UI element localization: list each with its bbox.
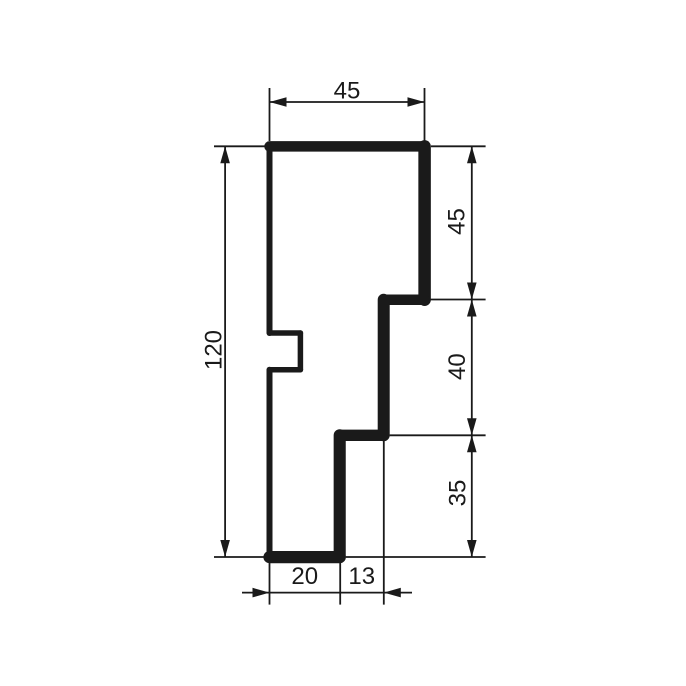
svg-text:40: 40: [444, 353, 471, 380]
svg-text:13: 13: [348, 563, 375, 590]
svg-text:120: 120: [201, 330, 228, 370]
svg-text:20: 20: [291, 563, 318, 590]
svg-text:45: 45: [444, 208, 471, 235]
svg-text:35: 35: [445, 480, 472, 507]
svg-text:45: 45: [334, 78, 361, 105]
